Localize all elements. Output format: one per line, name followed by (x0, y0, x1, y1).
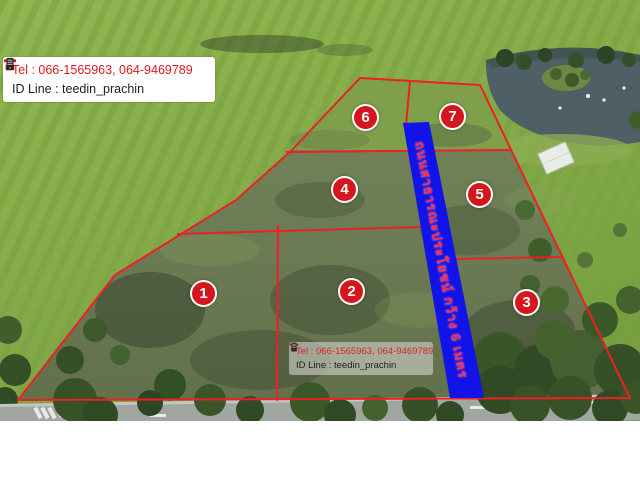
divider-plot1-plot2 (277, 226, 278, 400)
id-line-text: ID Line : teedin_prachin (12, 82, 144, 96)
contact-box-overlay: Tel : 066-1565963, 064-9469789 ID Line :… (289, 342, 433, 375)
tel-text: Tel : 066-1565963, 064-9469789 (12, 63, 193, 77)
plot-marker-3: 3 (513, 289, 540, 316)
contact-line-row-small: ID Line : teedin_prachin (293, 358, 429, 372)
plot-marker-1: 1 (190, 280, 217, 307)
plot-marker-4: 4 (331, 176, 358, 203)
contact-line-row: ID Line : teedin_prachin (8, 79, 210, 98)
aerial-photo: ถนนสาธารณะประโยชน์ กว้าง 6 เมตร 1 2 3 4 … (0, 0, 640, 421)
screenshot-stage: ถนนสาธารณะประโยชน์ กว้าง 6 เมตร 1 2 3 4 … (0, 0, 640, 480)
plot-marker-5: 5 (466, 181, 493, 208)
plot-marker-2: 2 (338, 278, 365, 305)
id-line-text: ID Line : teedin_prachin (296, 360, 396, 371)
bottom-white-margin (0, 421, 640, 480)
tel-text: Tel : 066-1565963, 064-9469789 (296, 346, 433, 357)
plot-marker-7: 7 (439, 103, 466, 130)
contact-tel-row: Tel : 066-1565963, 064-9469789 (8, 60, 210, 79)
contact-tel-row-small: Tel : 066-1565963, 064-9469789 (293, 344, 429, 358)
plot-marker-6: 6 (352, 104, 379, 131)
contact-box-main: Tel : 066-1565963, 064-9469789 ID Line :… (3, 57, 215, 102)
